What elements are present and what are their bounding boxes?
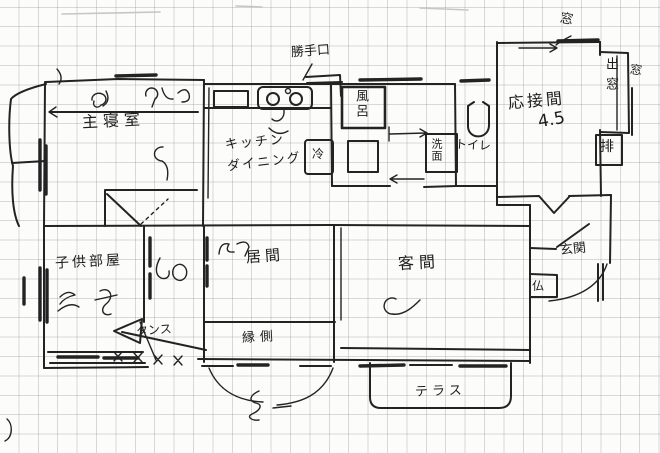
zigzag-scribble	[250, 391, 291, 420]
children-room-walls	[24, 226, 182, 368]
toilet-bowl	[468, 102, 489, 136]
master-bedroom-walls	[9, 75, 209, 226]
room-label-children: 子供部屋	[55, 253, 124, 271]
washing-machine	[348, 141, 378, 172]
corner-pen-mark	[5, 419, 11, 441]
stove	[214, 91, 248, 107]
paper-smudges	[62, 6, 468, 14]
faucet-scribble	[272, 110, 284, 121]
window-top-label: 窓	[559, 12, 574, 27]
south-wall-and-terrace	[5, 359, 530, 441]
children-room-scribbles	[58, 290, 117, 315]
floorplan-sheet: 主寝室 キッチン ダイニング 勝手口 風呂 洗面 トイレ 冷 応接間 4.5 窓…	[0, 0, 660, 453]
vent-label: 排	[600, 140, 614, 154]
fridge-label: 冷	[312, 148, 324, 160]
terrace-label: テラス	[415, 384, 466, 399]
window-arrow	[519, 44, 557, 52]
guest-room-walls	[334, 226, 529, 362]
door-arrow-right	[389, 127, 427, 141]
room-label-master-bedroom: 主寝室	[82, 111, 146, 130]
bath-label: 風呂	[354, 89, 367, 119]
wardrobe-label: タンス	[136, 323, 173, 337]
reception-size-label: 4.5	[537, 110, 567, 131]
room-label-living: 居間	[246, 248, 285, 266]
room-label-toilet: トイレ	[455, 138, 492, 152]
back-door-label: 勝手口	[291, 44, 331, 60]
room-label-guest: 客間	[398, 254, 441, 272]
bay-window-label: 出窓	[604, 57, 617, 97]
mid-wall	[45, 225, 530, 226]
corridor	[114, 258, 206, 360]
window-right-label: 窓	[629, 63, 643, 77]
utility-room	[331, 79, 457, 187]
entrance-door-leaf	[598, 264, 603, 301]
floorplan-drawing	[0, 0, 660, 453]
toilet-room	[455, 80, 497, 186]
corridor-scribble	[156, 258, 186, 280]
entrance-area	[497, 195, 611, 363]
veranda-label: 縁側	[242, 330, 279, 345]
guest-room-scribble	[384, 298, 420, 314]
garden-arcs	[209, 368, 333, 405]
washstand-label: 洗面	[431, 138, 442, 162]
door-arrow-left	[390, 175, 424, 183]
entrance-label: 玄関	[559, 242, 586, 258]
altar-label: 仏	[532, 280, 544, 292]
